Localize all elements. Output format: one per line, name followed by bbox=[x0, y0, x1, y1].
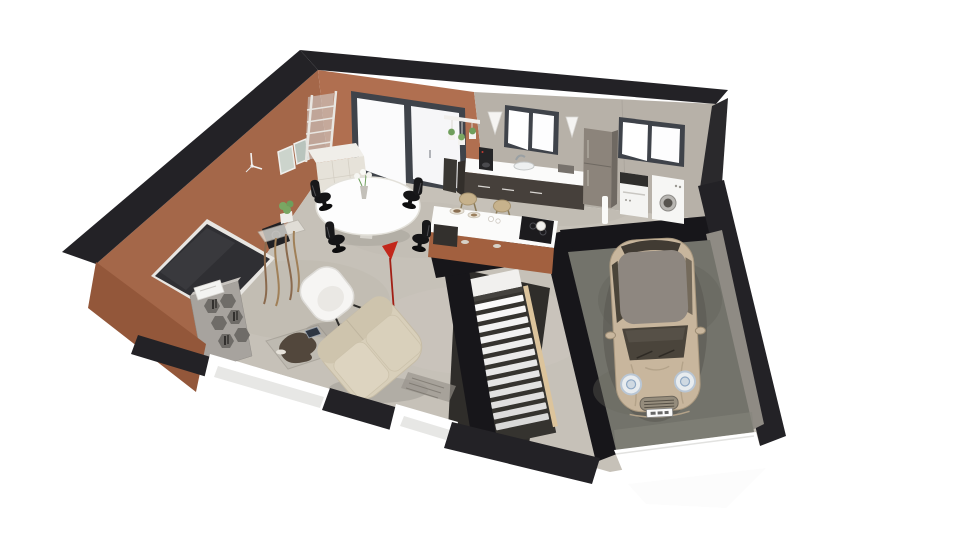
bowl bbox=[493, 244, 501, 248]
car-roof bbox=[617, 249, 689, 324]
induction-hob bbox=[519, 216, 554, 244]
plate-mark bbox=[665, 411, 669, 414]
cup bbox=[496, 219, 500, 223]
fridge bbox=[583, 128, 618, 208]
floorplan-3d-render bbox=[0, 0, 960, 540]
kitchen-sink bbox=[514, 162, 534, 170]
plate-food bbox=[471, 214, 477, 217]
dish bbox=[276, 350, 286, 355]
car-headlight-inner bbox=[680, 377, 689, 386]
washing-machine bbox=[620, 172, 648, 218]
kitchen-window bbox=[504, 105, 559, 155]
car-mirror bbox=[605, 332, 615, 340]
car-headlight-inner bbox=[626, 380, 635, 389]
car-mirror bbox=[695, 327, 705, 335]
cup bbox=[488, 216, 493, 221]
teapot bbox=[537, 222, 546, 231]
coffee-machine bbox=[479, 147, 493, 171]
bowl bbox=[461, 240, 469, 244]
render-canvas bbox=[0, 0, 960, 540]
dark-bin bbox=[443, 158, 457, 193]
plate-mark bbox=[651, 412, 656, 415]
island-sink-box bbox=[433, 224, 458, 247]
plate-mark bbox=[658, 411, 663, 414]
tumble-dryer bbox=[652, 175, 684, 224]
slim-white-lamp bbox=[602, 196, 608, 224]
plate-food bbox=[453, 209, 461, 212]
parked-car bbox=[601, 237, 710, 420]
